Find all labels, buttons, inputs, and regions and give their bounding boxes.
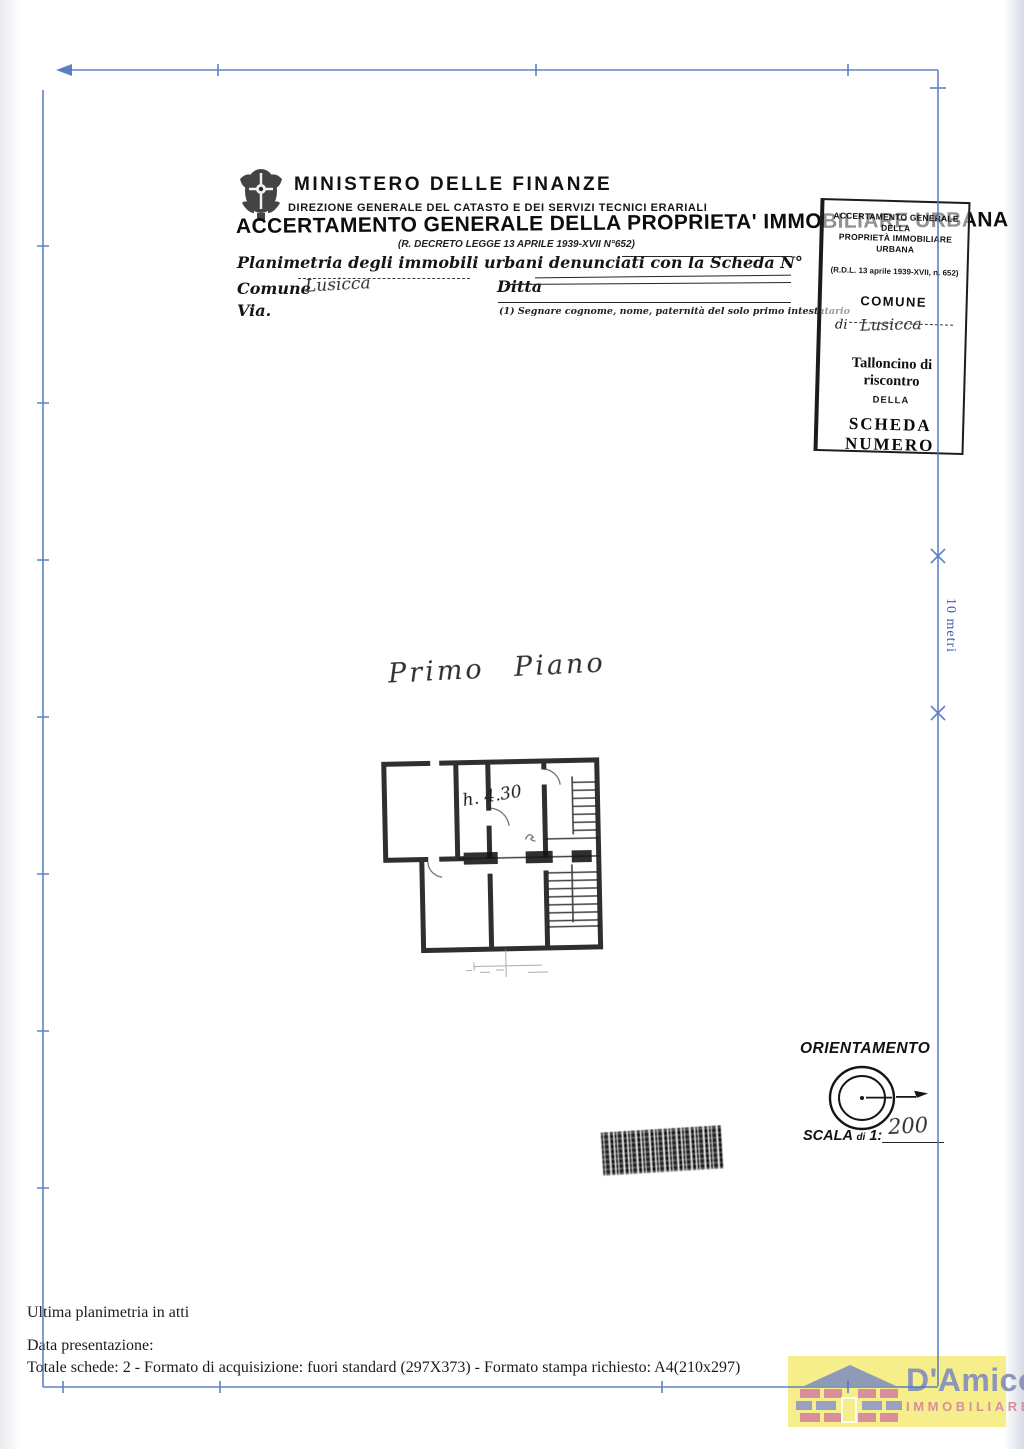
talloncino-riscontro: Talloncino di riscontro <box>825 354 958 392</box>
comune-label: Comune <box>237 279 311 298</box>
comune-handwritten-value: Lusicca <box>305 273 372 296</box>
ditta-write-line <box>535 275 791 279</box>
talloncino-box: ACCERTAMENTO GENERALE DELLA PROPRIETÀ IM… <box>813 198 970 455</box>
talloncino-decree: (R.D.L. 13 aprile 1939-XVII, n. 652) <box>828 265 960 278</box>
footer-data-presentazione: Data presentazione: <box>27 1337 154 1355</box>
decree-reference: (R. DECRETO LEGGE 13 APRILE 1939-XVII N°… <box>398 239 635 250</box>
footer-totale-schede: Totale schede: 2 - Formato di acquisizio… <box>27 1359 740 1377</box>
scala-di: di <box>856 1132 865 1143</box>
logo-name: D'Amico <box>906 1364 1024 1398</box>
frame-arrowhead <box>56 64 72 76</box>
scala-label: SCALA di 1: <box>803 1128 882 1144</box>
ministry-title: MINISTERO DELLE FINANZE <box>294 174 612 196</box>
agency-logo: D'Amico IMMOBILIARE <box>788 1356 1006 1427</box>
floor-plan-drawing: h. 4.30 <box>373 745 620 996</box>
scala-handwritten-value: 200 <box>887 1113 928 1139</box>
orientation-title: ORIENTAMENTO <box>800 1040 930 1058</box>
footnote-overline <box>498 302 791 303</box>
scala-one: 1: <box>869 1128 882 1144</box>
footnote-text: (1) Segnare cognome, nome, paternità del… <box>499 306 850 317</box>
dimension-marks <box>466 948 549 978</box>
ditta-write-line-2 <box>505 282 791 285</box>
talloncino-comune: COMUNE <box>828 292 960 311</box>
talloncino-title-line2: PROPRIETÀ IMMOBILIARE URBANA <box>829 231 962 256</box>
barcode <box>601 1125 723 1175</box>
logo-subtitle: IMMOBILIARE <box>906 1399 1024 1414</box>
footer-ultima-planimetria: Ultima planimetria in atti <box>27 1304 189 1322</box>
ten-metri-scale-label: 10 metri <box>942 598 958 653</box>
scan-edge-left <box>0 0 22 1449</box>
scala-word: SCALA <box>803 1128 852 1144</box>
house-icon <box>796 1360 906 1424</box>
scala-write-line <box>882 1142 944 1143</box>
ditta-label: Ditta <box>497 277 542 296</box>
talloncino-della: DELLA <box>825 393 957 408</box>
via-label: Via. <box>237 301 271 320</box>
di-label: di <box>835 317 848 332</box>
comune-write-line <box>298 278 470 279</box>
floor-label-handwritten: Primo Piano <box>387 647 606 689</box>
height-note-handwritten: h. 4.30 <box>461 782 523 811</box>
talloncino-scheda-numero: SCHEDA NUMERO <box>823 413 956 457</box>
scheda-number-line <box>622 256 792 257</box>
